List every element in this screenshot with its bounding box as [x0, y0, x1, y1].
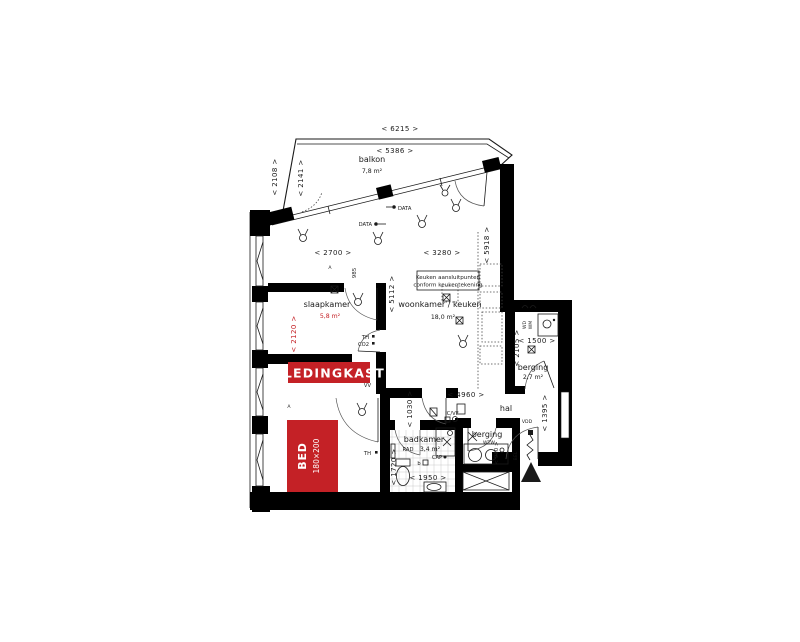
dim-5918: < 5918 > [483, 226, 491, 263]
dim-980: < 980 > [494, 441, 500, 465]
dim-5112: < 5112 > [388, 275, 396, 312]
marker-a2: A [287, 404, 291, 410]
dim-1395: < 1395 > [541, 394, 549, 431]
dim-1030: < 1030 > [406, 390, 414, 427]
badkamer-label: badkamer [404, 435, 445, 444]
dim-2120: < 2120 > [290, 315, 298, 352]
facade-column [376, 184, 393, 199]
th-sensor-icon [372, 335, 375, 338]
red-furniture: KLEDINGKAST BED 180×200 [273, 362, 385, 492]
balcony-area: 7,8 m² [362, 168, 383, 175]
light-icon [451, 199, 461, 212]
facade-column [482, 157, 501, 173]
kitchen-note-line1: Keuken aansluitpunten [416, 275, 481, 281]
data-label-2: DATA [359, 222, 373, 228]
socket-icon [528, 346, 535, 353]
th-label: TH [361, 335, 369, 341]
wall-left-3 [252, 350, 268, 368]
wall-badkamer-top-left [385, 420, 395, 430]
light-icon [417, 215, 427, 228]
kitchen-unit [482, 312, 502, 342]
toilet-cistern-icon [396, 459, 410, 466]
wd-label: WD [522, 321, 528, 330]
dim-3280: < 3280 > [423, 249, 460, 257]
dim-1950: < 1950 > [409, 474, 446, 482]
wall-left-4 [252, 416, 268, 434]
wm-label: WM [528, 321, 534, 330]
socket-icon [430, 408, 437, 416]
woonkamer-area: 18,0 m² [431, 314, 456, 321]
dim-2700: < 2700 > [314, 249, 351, 257]
wall-corridor-1 [384, 388, 422, 398]
toilet-bowl-icon [397, 467, 410, 486]
floorplan-page: < 6215 > < 5386 > < 2108 > < 2141 > balk… [0, 0, 800, 642]
th2-sensor-icon [375, 451, 378, 454]
entry-sidelight-panel [561, 392, 569, 438]
th2-label: TH [363, 451, 371, 457]
entry-squiggle-icon [527, 435, 533, 460]
mullion-tick [440, 178, 442, 186]
marker-a1: A [328, 265, 332, 271]
balcony-door-leaf [484, 172, 487, 206]
light-icon [458, 335, 468, 348]
kitchen-unit [480, 346, 502, 364]
light-icon [353, 293, 363, 306]
sink-unit-icon [538, 314, 558, 336]
wall-bottom [250, 492, 520, 510]
window-icon [256, 434, 263, 486]
hal-label: hal [500, 404, 512, 413]
balcony-dashed-swing [302, 192, 322, 212]
kledingkast-label: KLEDINGKAST [273, 366, 385, 381]
data-outlet-icon: DATA [386, 205, 412, 212]
rad-label: RAD [403, 447, 414, 453]
dim-4960: < 4960 > [447, 391, 484, 399]
bedroom-door-arc [336, 398, 378, 442]
window-icon [256, 302, 263, 350]
wall-left-2 [252, 286, 268, 302]
b-label: b [417, 461, 421, 467]
kitchen-note-line2: conform keukentekening [413, 283, 483, 289]
badkamer-area: 3,4 m² [420, 446, 441, 453]
facade-column [266, 207, 294, 226]
tap-icon [553, 319, 555, 321]
woonkamer-label: woonkamer / keuken [398, 300, 481, 309]
light-icon [373, 232, 383, 245]
dim-985: 985 [352, 267, 358, 278]
co2-label: CO2 [358, 342, 369, 348]
vv-label: VV [364, 383, 372, 389]
dim-1720: < 1720 > [390, 448, 398, 485]
cap-label: CAP [432, 455, 442, 461]
kitchen-unit [480, 264, 502, 286]
kitchen-unit [480, 292, 502, 308]
window-icon [256, 236, 263, 286]
slaapkamer-label: slaapkamer [304, 300, 351, 309]
vdd-label: VDD [522, 419, 533, 425]
sink-bowl-icon [543, 320, 551, 328]
dim-2141: < 2141 > [297, 159, 305, 196]
bed-size-label: 180×200 [312, 438, 321, 473]
doorbell-point-icon [528, 430, 533, 435]
valve-icon [500, 448, 504, 452]
interior-door-leaf [358, 351, 380, 352]
wall-bedroom-badkamer [380, 394, 390, 492]
cap-point-icon [444, 456, 447, 459]
co2-sensor-icon [372, 342, 375, 345]
berging-klein-label: berging [472, 430, 503, 439]
slaapkamer-area: 5,8 m² [320, 313, 341, 320]
wall-left-1 [250, 210, 270, 236]
wall-interior-1 [376, 283, 386, 330]
light-icon [357, 403, 367, 416]
berging-rechts-label: berging [518, 363, 549, 372]
wall-entry-right [538, 452, 572, 466]
data-label-1: DATA [398, 206, 412, 212]
dim-2108: < 2108 > [271, 158, 279, 195]
dim-6215: < 6215 > [381, 125, 418, 133]
balcony: < 6215 > < 5386 > < 2108 > < 2141 > balk… [271, 125, 512, 212]
wall-berging2-bottom [505, 386, 525, 394]
dim-2105: < 2105 > [513, 329, 521, 366]
wall-shaft-top [458, 464, 512, 472]
light-icon [440, 185, 450, 196]
balcony-label: balkon [359, 155, 386, 164]
socket-icon [456, 317, 463, 324]
bel-label: BEL [513, 451, 519, 460]
kitchen-note: Keuken aansluitpunten conform keukenteke… [413, 271, 483, 290]
mullion-tick [328, 206, 330, 214]
dim-1500: < 1500 > [518, 337, 555, 345]
window-icon [256, 368, 263, 416]
data-outlet-icon: DATA [359, 222, 386, 228]
wall-utility-top [500, 300, 572, 312]
light-icon [298, 229, 308, 242]
washer-drum-icon [469, 449, 482, 462]
bed-label: BED [296, 442, 309, 469]
berging-rechts-area: 2,7 m² [523, 374, 544, 381]
floorplan-drawing: < 6215 > < 5386 > < 2108 > < 2141 > balk… [0, 0, 800, 642]
wall-badkamer-right [455, 420, 463, 492]
dim-5386: < 5386 > [376, 147, 413, 155]
